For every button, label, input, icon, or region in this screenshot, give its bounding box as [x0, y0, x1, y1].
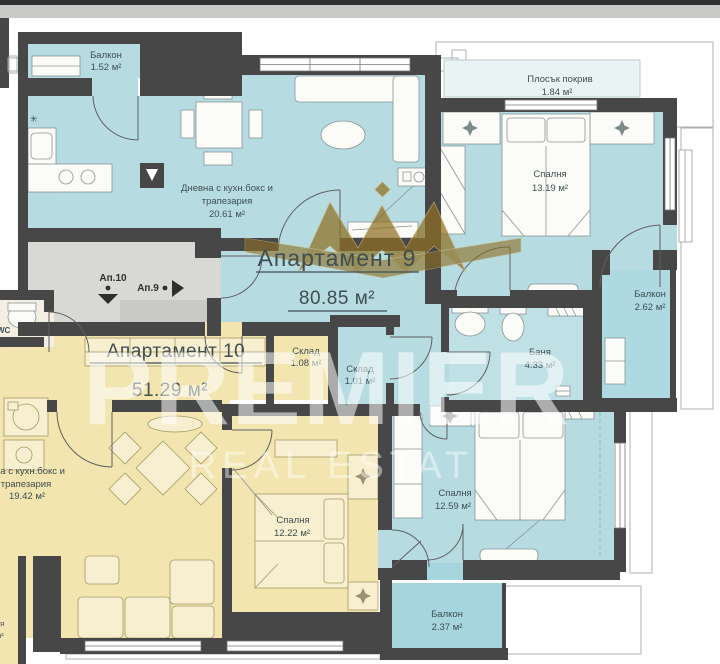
label-bedroom-bottom-area: 12.59 м² [435, 501, 471, 512]
label-apartment9-title: Апартамент 9 [258, 245, 417, 271]
lamp-icon: ✳ [30, 114, 38, 124]
label-edge-fragment-2: м² [0, 631, 4, 640]
label-balcony-top-area: 1.52 м² [91, 62, 122, 73]
label-ap9-marker: Ап.9 [137, 283, 159, 294]
watermark-brand: PREMIER [83, 331, 571, 447]
electrical-panel-icon [398, 168, 428, 186]
ap10-dot [106, 286, 111, 291]
label-bedroom-bottom-name: Спалня [438, 488, 471, 499]
label-balcony-bottom-area: 2.37 м² [432, 622, 463, 633]
label-edge-fragment-1: ня [0, 619, 4, 628]
label-bedroom10-area: 12.22 м² [274, 528, 310, 539]
label-living10-area: 19.42 м² [9, 491, 45, 502]
label-flat-roof-area: 1.84 м² [542, 87, 573, 98]
label-living10-line2: трапезария [1, 479, 52, 490]
balcony-right-radiator [605, 338, 625, 384]
ap9-dot [163, 286, 168, 291]
stair-shade [120, 300, 207, 322]
label-balcony-right-name: Балкон [634, 289, 666, 300]
label-ap10-marker: Ап.10 [99, 273, 127, 284]
label-living9-area: 20.61 м² [209, 209, 245, 220]
floor-plan-image: ✳ [0, 0, 720, 664]
label-balcony-right-area: 2.62 м² [635, 302, 666, 313]
label-wc-area-fragment: м² [0, 338, 6, 347]
label-bedroom-top-name: Спалня [533, 169, 566, 180]
label-flat-roof-name: Плосък покрив [527, 74, 592, 85]
label-balcony-top-name: Балкон [90, 50, 122, 61]
label-bedroom10-name: Спалня [276, 515, 309, 526]
label-wc: WC [0, 326, 11, 335]
label-balcony-bottom-name: Балкон [431, 609, 463, 620]
label-living9-line2: трапезария [202, 196, 253, 207]
balcony-top-bench [32, 56, 80, 76]
floor-plan-svg: ✳ [0, 0, 720, 664]
label-living10-line1: на с кухн.бокс и [0, 466, 65, 477]
label-living9-line1: Дневна с кухн.бокс и [181, 183, 273, 194]
label-bedroom-top-area: 13.19 м² [532, 183, 568, 194]
label-apartment9-area: 80.85 м² [299, 288, 375, 309]
watermark-tagline: REAL ESTATE [189, 445, 506, 487]
room-fill-neighbor-strip [0, 560, 18, 664]
